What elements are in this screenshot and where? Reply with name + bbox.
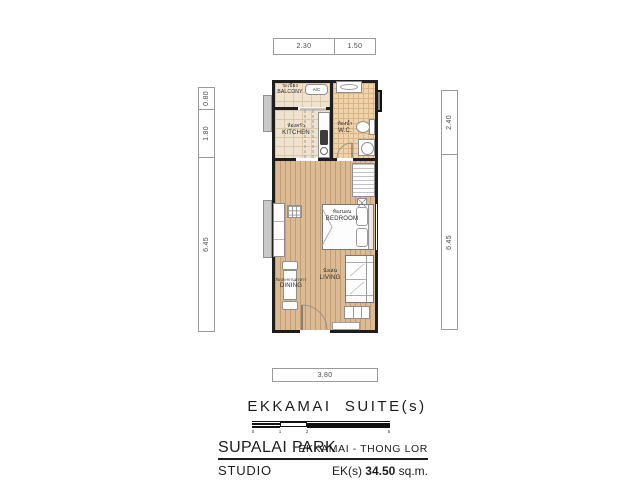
project-location: EKKAMAI - THONG LOR [298,443,428,455]
dimension-bar-right: 2.40 6.45 [441,90,458,330]
scale-tick-0: 0 [252,429,255,434]
title-divider [218,458,428,460]
scale-seg-3 [307,423,390,428]
wc-door-swing [337,143,352,158]
floor-plan-page: 2.30 1.50 0.80 1.80 6.45 2.40 6.45 3.80 [0,0,640,480]
plan-title: EKKAMAI SUITE(s) [230,398,444,415]
project-row: SUPALAI PARK EKKAMAI - THONG LOR [218,437,428,457]
plan-linework [272,80,378,333]
scale-tick-2: 2 [306,429,309,434]
entry-door-swing [302,305,327,330]
scale-seg-2 [280,422,307,427]
dimension-bar-bottom: 3.80 [272,368,378,382]
dining-label: รับประทานอาหาร DINING [272,278,310,289]
scale-tick-1: 1 [279,429,282,434]
balcony-ledge [263,95,272,132]
dimension-bar-left: 0.80 1.80 6.45 [198,87,215,332]
scale-bar: 0 1 2 5 [252,420,390,434]
dim-left-3: 6.45 [199,158,214,331]
balcony-sliding-door [300,108,326,109]
area-code: EK(s) [332,464,365,478]
unit-area: EK(s) 34.50 sq.m. [332,464,428,478]
living-label: นั่งเล่น LIVING [316,269,344,282]
dim-right-2: 6.45 [442,155,457,329]
area-value: 34.50 [365,464,395,478]
unit-row: STUDIO EK(s) 34.50 sq.m. [218,461,428,478]
dim-top-1: 2.30 [274,39,335,54]
scale-tick-5: 5 [388,429,391,434]
fan-icon [358,199,366,207]
dim-right-1: 2.40 [442,91,457,155]
area-unit: sq.m. [395,464,428,478]
dimension-bar-top: 2.30 1.50 [273,38,376,55]
scale-bar-line [252,421,390,422]
dim-left-2: 1.80 [199,110,214,159]
dim-left-1: 0.80 [199,88,214,110]
window-ledge [263,200,272,258]
wc-label: ห้องน้ำ W.C. [334,122,356,135]
kitchen-label: ห้องครัว KITCHEN [276,124,316,137]
sofa-cushion-marks [350,264,364,294]
bedroom-label: ห้องนอน BEDROOM [324,210,360,223]
scale-seg-1 [252,423,280,428]
dim-bottom-1: 3.80 [273,369,377,381]
unit-type: STUDIO [218,463,272,478]
balcony-label: ระเบียง BALCONY [275,84,305,96]
floor-plan: A/C [272,80,378,333]
dim-top-2: 1.50 [335,39,375,54]
